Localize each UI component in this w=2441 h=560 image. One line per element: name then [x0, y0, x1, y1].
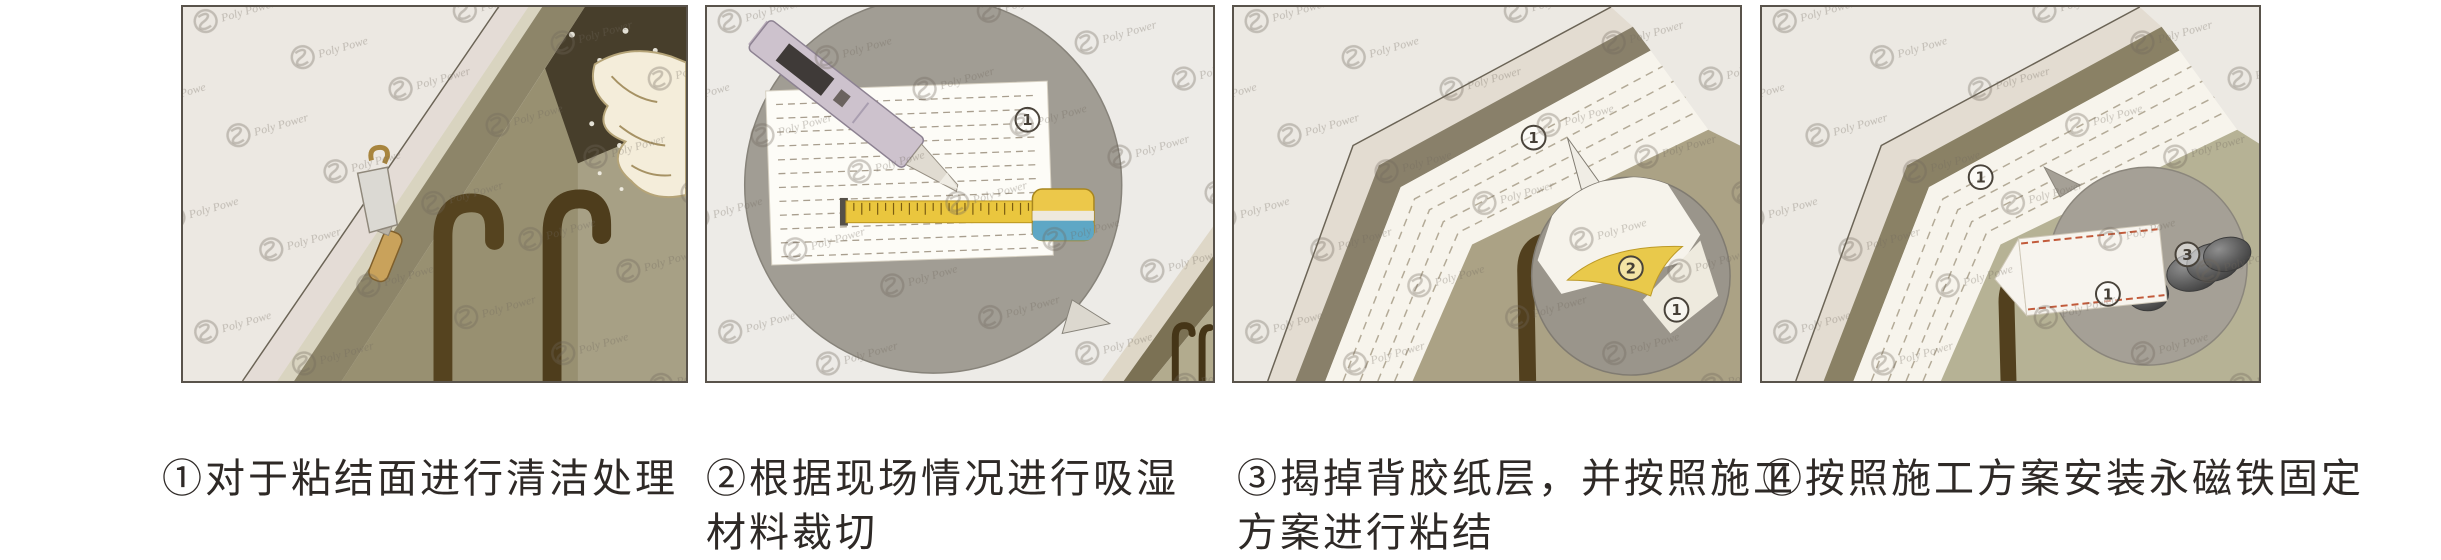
step-2-caption: ②根据现场情况进行吸湿 材料裁切 — [706, 452, 1179, 560]
step-3-caption: ③揭掉背胶纸层，并按照施工 方案进行粘结 — [1237, 452, 1796, 560]
step-4-caption: ④按照施工方案安装永磁铁固定 — [1762, 452, 2364, 506]
watermark-overlay — [1234, 7, 1740, 381]
caption-line: ④按照施工方案安装永磁铁固定 — [1762, 452, 2364, 506]
watermark-overlay — [183, 7, 686, 381]
watermark-overlay — [1762, 7, 2259, 381]
step-3-photo: Poly Power Poly Power — [1232, 5, 1742, 383]
watermark-overlay — [707, 7, 1213, 381]
installation-steps-figure: Poly Power Poly Power — [0, 0, 2441, 560]
caption-line: 方案进行粘结 — [1237, 506, 1796, 560]
step-3-illustration: Poly Power Poly Power — [1234, 7, 1740, 381]
step-2-illustration: Poly Power Poly Power — [707, 7, 1213, 381]
caption-line: 材料裁切 — [706, 506, 1179, 560]
step-2-photo: Poly Power Poly Power — [705, 5, 1215, 383]
step-1-caption: ①对于粘结面进行清洁处理 — [162, 452, 678, 506]
step-4-illustration: Poly Power Poly Power — [1762, 7, 2259, 381]
step-1-photo: Poly Power Poly Power — [181, 5, 688, 383]
step-1-illustration: Poly Power Poly Power — [183, 7, 686, 381]
caption-line: ②根据现场情况进行吸湿 — [706, 452, 1179, 506]
step-4-photo: Poly Power Poly Power — [1760, 5, 2261, 383]
caption-line: ③揭掉背胶纸层，并按照施工 — [1237, 452, 1796, 506]
caption-line: ①对于粘结面进行清洁处理 — [162, 452, 678, 506]
